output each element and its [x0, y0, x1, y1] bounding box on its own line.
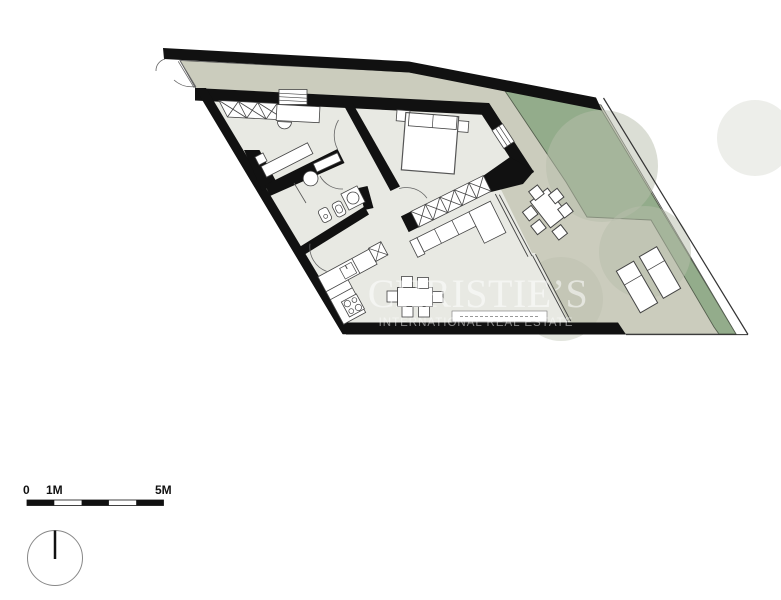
svg-text:INTERNATIONAL REAL ESTATE: INTERNATIONAL REAL ESTATE	[379, 317, 574, 329]
svg-text:0: 0	[23, 483, 30, 497]
svg-text:5M: 5M	[155, 483, 172, 497]
svg-text:CHRISTIE’S: CHRISTIE’S	[368, 271, 589, 316]
svg-text:1M: 1M	[46, 483, 63, 497]
